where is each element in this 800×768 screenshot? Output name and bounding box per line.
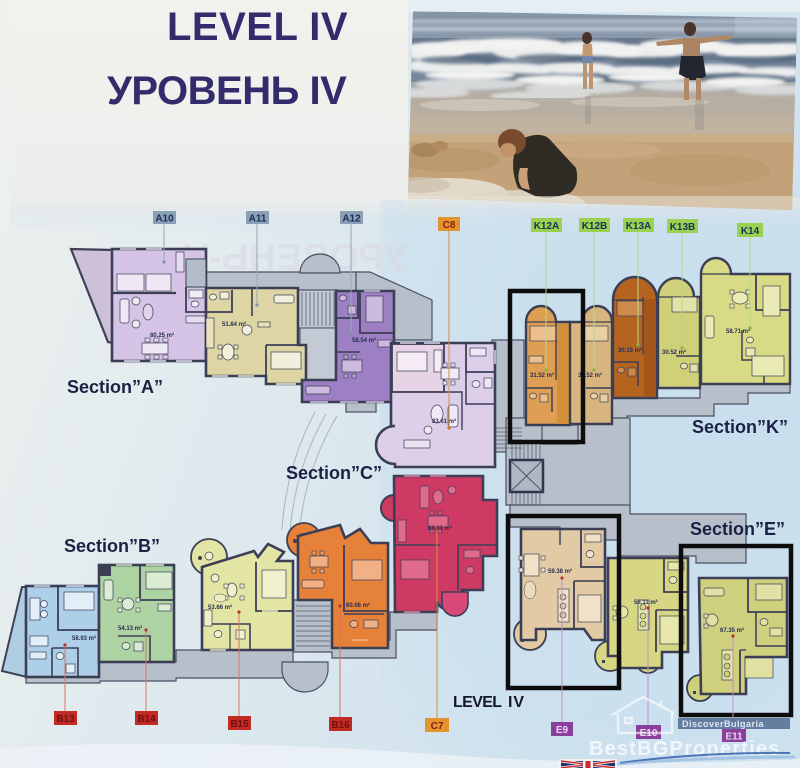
svg-text:DiscoverBulgaria: DiscoverBulgaria <box>682 719 765 729</box>
svg-text:B14: B14 <box>137 714 156 725</box>
svg-text:Section”A”: Section”A” <box>67 377 163 397</box>
svg-text:E9: E9 <box>556 725 569 736</box>
svg-text:58.54 m²: 58.54 m² <box>352 337 376 344</box>
svg-text:83.61 m²: 83.61 m² <box>428 525 452 532</box>
svg-text:IV: IV <box>508 694 524 711</box>
svg-text:60.06 m²: 60.06 m² <box>346 602 370 609</box>
svg-text:Section”B”: Section”B” <box>64 536 160 556</box>
svg-text:C7: C7 <box>431 721 444 732</box>
svg-text:51.84 m²: 51.84 m² <box>222 321 246 328</box>
svg-text:59.38 m²: 59.38 m² <box>548 568 572 575</box>
svg-text:LEVEL IV: LEVEL IV <box>167 5 348 49</box>
svg-text:58.11 m²: 58.11 m² <box>634 599 658 606</box>
svg-text:54.13 m²: 54.13 m² <box>118 625 142 632</box>
svg-text:31.52 m²: 31.52 m² <box>530 372 554 379</box>
svg-text:58.93 m²: 58.93 m² <box>72 635 96 642</box>
svg-text:30.15 m²: 30.15 m² <box>618 347 642 354</box>
svg-text:B13: B13 <box>56 714 75 725</box>
svg-text:B16: B16 <box>331 720 350 731</box>
svg-text:A11: A11 <box>249 214 267 225</box>
svg-text:K14: K14 <box>741 226 760 237</box>
svg-text:30.52 m²: 30.52 m² <box>662 349 686 356</box>
svg-text:80.25 m²: 80.25 m² <box>150 332 174 339</box>
svg-text:B15: B15 <box>230 719 249 730</box>
svg-text:Section”K”: Section”K” <box>692 417 788 437</box>
svg-text:A12: A12 <box>342 214 361 225</box>
svg-text:K12A: K12A <box>534 221 560 232</box>
svg-text:Section”E”: Section”E” <box>690 519 785 539</box>
svg-text:83.61 m²: 83.61 m² <box>432 418 456 425</box>
svg-text:УРОВЕНЬ IV: УРОВЕНЬ IV <box>107 69 347 113</box>
svg-text:Section”C”: Section”C” <box>286 463 382 483</box>
svg-text:LEVEL: LEVEL <box>453 694 502 711</box>
svg-text:K13A: K13A <box>626 221 652 232</box>
svg-text:K13B: K13B <box>670 222 696 233</box>
svg-text:67.35 m²: 67.35 m² <box>720 627 744 634</box>
svg-text:53.66 m²: 53.66 m² <box>208 604 232 611</box>
svg-text:58.71 m²: 58.71 m² <box>726 328 750 335</box>
svg-text:A10: A10 <box>155 214 174 225</box>
svg-text:C8: C8 <box>443 220 456 231</box>
svg-text:K12B: K12B <box>582 221 608 232</box>
